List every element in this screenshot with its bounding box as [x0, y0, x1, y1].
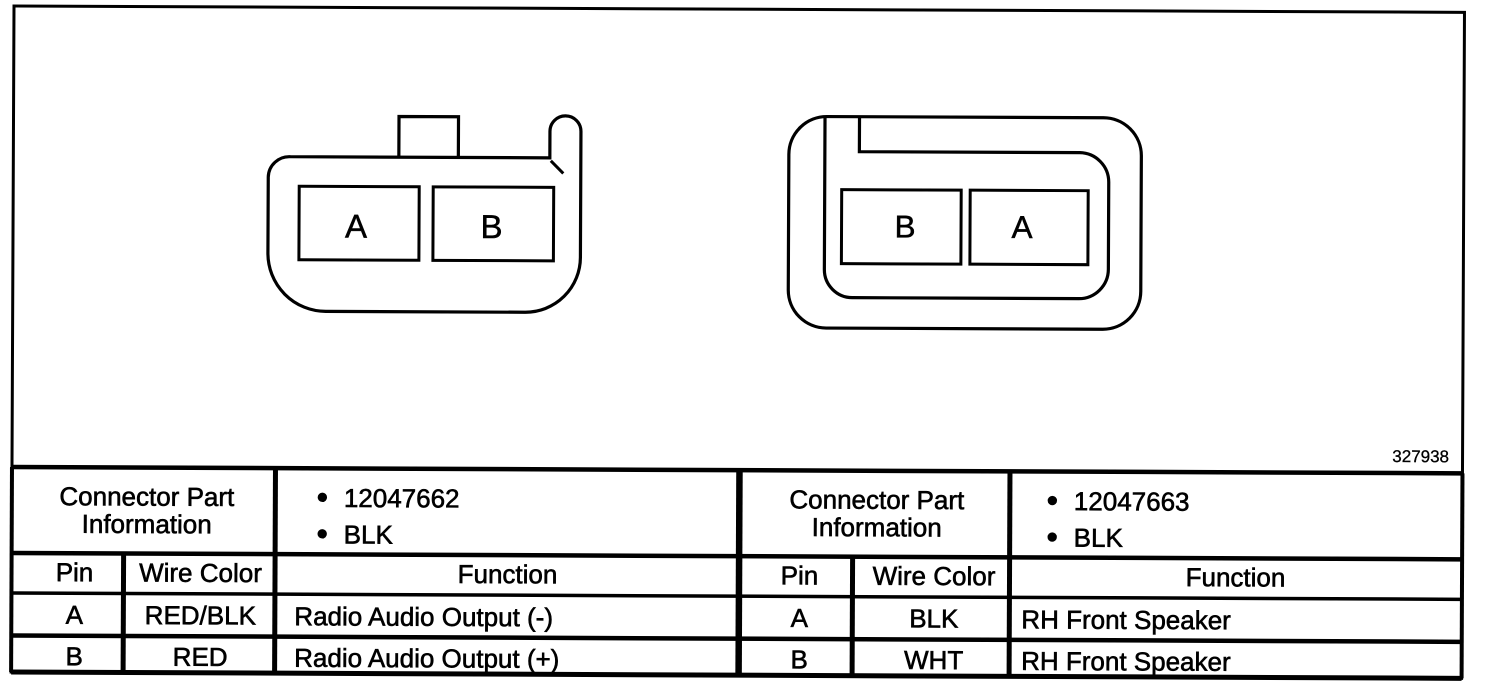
svg-text:BLK: BLK	[344, 519, 394, 549]
svg-text:RED/BLK: RED/BLK	[145, 600, 257, 630]
svg-text:BLK: BLK	[909, 603, 959, 633]
svg-text:Connector Part: Connector Part	[789, 484, 965, 515]
svg-text:RH Front Speaker: RH Front Speaker	[1021, 604, 1231, 635]
svg-text:Pin: Pin	[56, 557, 94, 587]
svg-text:B: B	[894, 208, 915, 244]
svg-text:A: A	[791, 603, 809, 633]
svg-text:Wire Color: Wire Color	[139, 558, 262, 589]
svg-text:Connector Part: Connector Part	[59, 481, 235, 512]
svg-text:Pin: Pin	[781, 560, 819, 590]
svg-text:327938: 327938	[1392, 447, 1449, 466]
svg-text:RH Front Speaker: RH Front Speaker	[1021, 646, 1231, 677]
svg-text:Function: Function	[458, 559, 558, 589]
svg-text:Information: Information	[82, 509, 212, 540]
svg-text:B: B	[790, 644, 807, 674]
svg-text:Function: Function	[1186, 562, 1286, 592]
svg-text:Wire Color: Wire Color	[873, 561, 996, 592]
svg-text:RED: RED	[173, 642, 228, 672]
svg-text:Radio Audio Output (+): Radio Audio Output (+)	[294, 643, 559, 674]
svg-text:B: B	[65, 641, 82, 671]
svg-text:Radio Audio Output (-): Radio Audio Output (-)	[294, 601, 553, 632]
svg-text:Information: Information	[812, 512, 942, 543]
svg-text:A: A	[345, 207, 367, 244]
svg-text:A: A	[1011, 209, 1032, 245]
svg-text:A: A	[66, 600, 84, 630]
svg-text:B: B	[480, 208, 502, 245]
svg-text:BLK: BLK	[1074, 523, 1124, 553]
svg-text:12047663: 12047663	[1074, 486, 1190, 517]
svg-text:12047662: 12047662	[344, 483, 460, 514]
svg-text:WHT: WHT	[904, 645, 963, 675]
